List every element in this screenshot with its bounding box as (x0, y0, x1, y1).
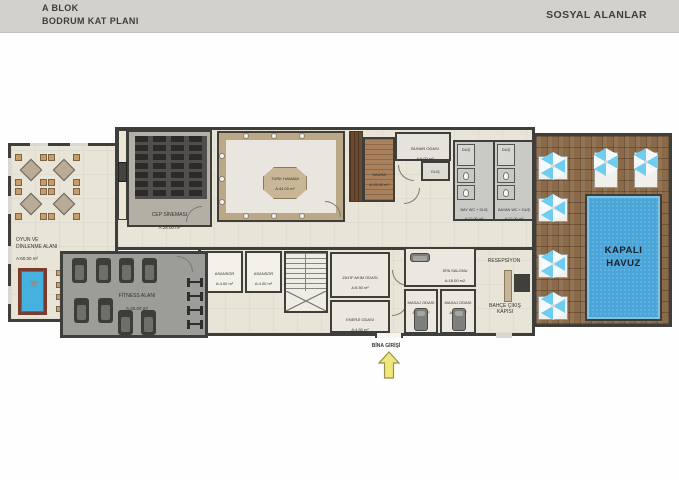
treadmill-icon (74, 298, 89, 323)
chair-icon (15, 188, 22, 195)
shower-label: DUŞ (498, 147, 514, 152)
block-title: A BLOK (42, 3, 79, 13)
massage-bed-icon (414, 308, 428, 331)
staircase (284, 251, 328, 313)
massage-bed-icon (452, 308, 466, 331)
window (8, 246, 11, 264)
basin-icon (271, 133, 277, 139)
window (70, 143, 88, 146)
room-label-shower: DUŞ (423, 169, 448, 174)
dumbbell-rack-icon (187, 278, 203, 287)
pool-hall: KAPALI HAVUZ (533, 133, 672, 327)
stair-treads-icon (286, 253, 326, 291)
shower-label: DUŞ (458, 147, 474, 152)
kiosk-icon (118, 162, 127, 182)
room-label-spa: SPA SALONU A:18.00 m2 (434, 263, 476, 288)
basin-icon (299, 213, 305, 219)
room-label-hamam: TÜRK HAMAMI A:44.00 m² (271, 171, 299, 196)
entrance-label: BİNA GİRİŞİ (355, 343, 417, 349)
room-sauna: SAUNA A:15.50 m² (363, 137, 395, 202)
door-arc-icon (177, 256, 193, 272)
sauna-bench-wall (349, 131, 363, 202)
room-label-elevator-1: ASANSÖR A:4.00 m² (208, 266, 241, 291)
room-low-current: ZAYIF AKIM ODASI A:8.50 m² (330, 252, 390, 298)
room-massage-1: MASAJ ODASI A:9.50 m² (404, 289, 438, 334)
window (30, 143, 48, 146)
basin-icon (219, 199, 225, 205)
room-steam: BUHAR ODASI A:6.00 m² (395, 132, 451, 161)
billiard-table (18, 268, 47, 315)
basin-icon (243, 213, 249, 219)
wc-stall (497, 168, 515, 183)
chair-icon (48, 213, 55, 220)
room-energy: ENERJİ ODASI A:4.50 m² (330, 300, 390, 333)
basin-icon (243, 133, 249, 139)
table-icon (53, 193, 76, 216)
room-fitness: FİTNESS ALANI A:40.00 m² (60, 251, 208, 338)
chair-icon (15, 154, 22, 161)
dining-table-set (47, 153, 81, 187)
spa-bed-icon (410, 253, 430, 262)
toilet-icon (503, 172, 509, 180)
wc-stall (457, 185, 475, 200)
shower-cell: DUŞ (497, 144, 515, 166)
toilet-icon (503, 189, 509, 197)
room-label-sauna: SAUNA A:15.50 m² (365, 167, 393, 192)
garden-exit-door (496, 333, 512, 338)
chair-icon (48, 188, 55, 195)
hamam-platform: TÜRK HAMAMI A:44.00 m² (263, 167, 307, 199)
chair-icon (73, 179, 80, 186)
dumbbell-rack-icon (187, 306, 203, 315)
basin-icon (299, 133, 305, 139)
floor-plan-canvas: A BLOK BODRUM KAT PLANI SOSYAL ALANLAR R… (0, 0, 679, 480)
reception-desk (504, 270, 512, 302)
table-icon (20, 193, 43, 216)
basin-icon (219, 176, 225, 182)
room-label-garden-exit: BAHÇE ÇIKIŞ KAPISI (482, 303, 528, 316)
chair-icon (15, 213, 22, 220)
basin-icon (271, 213, 277, 219)
wc-block: DUŞ DUŞ BAY WC + DUŞ A:12.00 m² BAYAN WC… (453, 140, 534, 221)
room-spa: SPA SALONU A:18.00 m2 (404, 247, 476, 287)
shower-cell: DUŞ (457, 144, 475, 166)
chair-icon (40, 154, 47, 161)
chair-icon (15, 179, 22, 186)
room-label-reception: RESEPSİYON (476, 258, 532, 264)
room-massage-2: MASAJ ODASI A:5.00 m² (440, 289, 476, 334)
window (8, 196, 11, 214)
header-bar: A BLOK BODRUM KAT PLANI SOSYAL ALANLAR (0, 0, 679, 33)
stair-landing-icon (286, 291, 326, 311)
dining-table-set (14, 187, 48, 221)
table-icon (20, 159, 43, 182)
section-title: SOSYAL ALANLAR (546, 9, 647, 21)
reception-desk-block (514, 274, 530, 292)
room-elevator-1: ASANSÖR A:4.00 m² (206, 251, 243, 293)
chair-icon (73, 213, 80, 220)
cinema-seats-icon (135, 136, 207, 199)
indoor-pool: KAPALI HAVUZ (585, 194, 662, 321)
wc-stall (497, 185, 515, 200)
chair-icon (48, 179, 55, 186)
chair-icon (40, 179, 47, 186)
room-label-women-wc: BAYAN WC + DUŞ A:12.00 m² (495, 203, 533, 227)
room-shower: DUŞ (421, 161, 450, 181)
window (8, 158, 11, 176)
plan-title: BODRUM KAT PLANI (42, 16, 139, 26)
treadmill-icon (96, 258, 111, 283)
room-label-men-wc: BAY WC + DUŞ A:12.00 m² (455, 203, 493, 227)
room-label-elevator-2: ASANSÖR A:4.00 m² (247, 266, 280, 291)
chair-icon (73, 154, 80, 161)
room-label-pool: KAPALI HAVUZ (605, 245, 643, 270)
treadmill-icon (142, 258, 157, 283)
chair-icon (73, 188, 80, 195)
room-label-fitness: FİTNESS ALANI A:40.00 m² (107, 287, 167, 318)
dumbbell-rack-icon (187, 292, 203, 301)
chair-icon (40, 188, 47, 195)
window (8, 286, 11, 304)
dining-table-set (14, 153, 48, 187)
treadmill-icon (72, 258, 87, 283)
chair-icon (40, 213, 47, 220)
wc-stall (457, 168, 475, 183)
table-icon (53, 159, 76, 182)
treadmill-icon (119, 258, 134, 283)
toilet-icon (463, 189, 469, 197)
toilet-icon (463, 172, 469, 180)
dining-table-set (47, 187, 81, 221)
basin-icon (219, 153, 225, 159)
dumbbell-rack-icon (187, 320, 203, 329)
entrance-arrow-icon (378, 351, 400, 384)
room-elevator-2: ASANSÖR A:4.00 m² (245, 251, 282, 293)
chair-icon (48, 154, 55, 161)
room-label-low-current: ZAYIF AKIM ODASI A:8.50 m² (332, 270, 388, 295)
entrance-door-gap (375, 333, 403, 338)
